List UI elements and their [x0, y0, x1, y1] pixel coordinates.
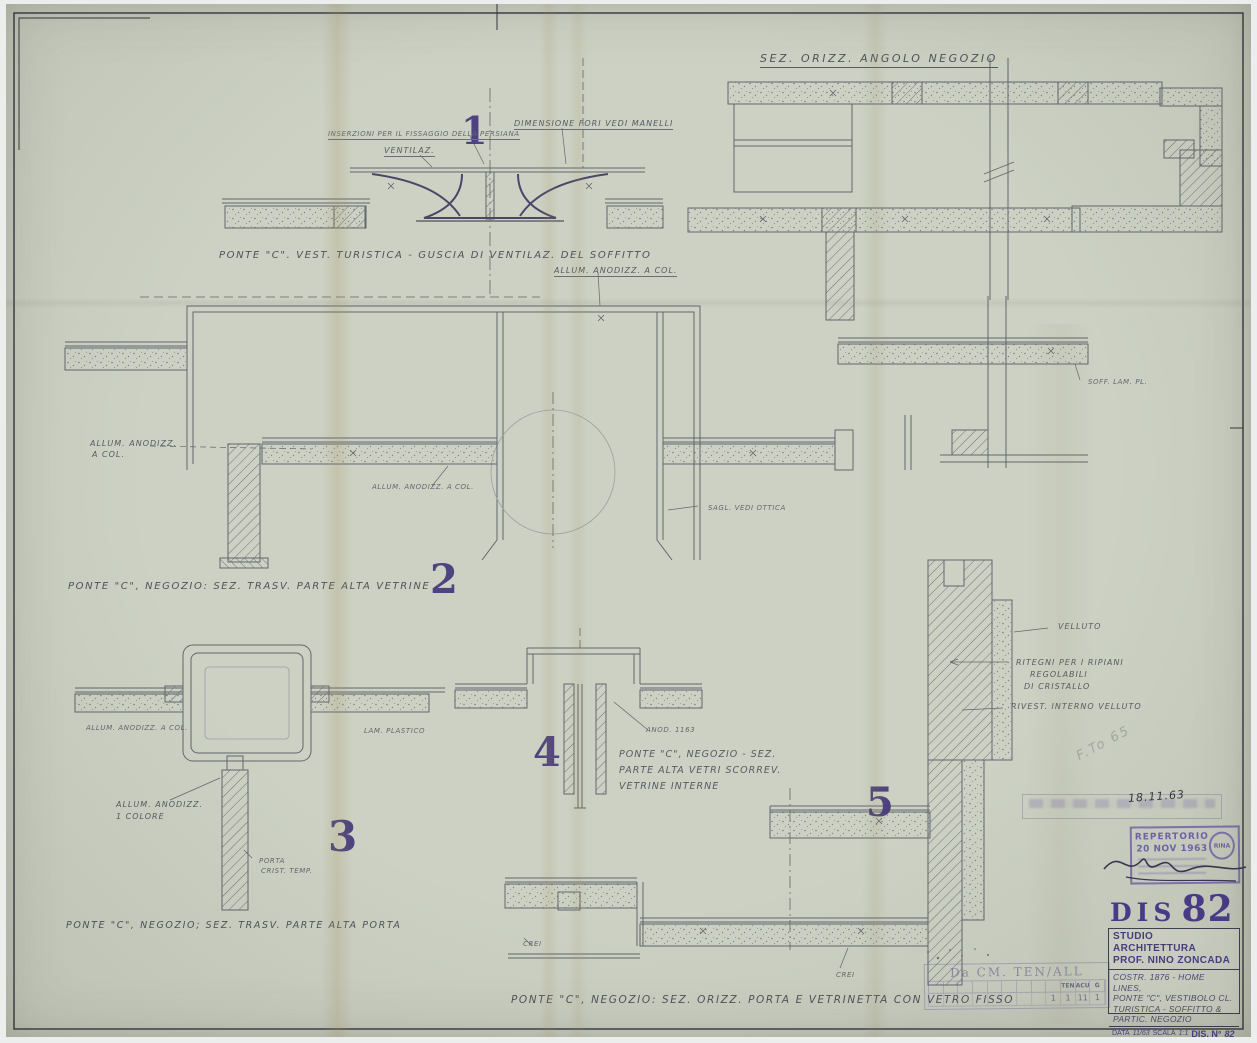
project-desc-3: TURISTICA - SOFFITTO &	[1113, 1004, 1236, 1015]
detail-3-caption: PONTE "C", NEGOZIO; SEZ. TRASV. PARTE AL…	[66, 920, 401, 931]
detail-2-label-left-1: ALLUM. ANODIZZ.	[90, 439, 177, 448]
data-value: 11/63	[1133, 1030, 1150, 1037]
detail-2-label-soffitto: SOFF. LAM. PL.	[1088, 378, 1147, 386]
detail-1-label-dimensione: DIMENSIONE FORI VEDI MANELLI	[514, 119, 673, 130]
tenall-n4: 1	[1090, 992, 1105, 1004]
detail-4-label-anod: ANOD. 1163	[646, 726, 695, 734]
tenall-cell-ten: TEN	[1061, 980, 1076, 991]
detail-1-label-ventilaz: VENTILAZ.	[384, 146, 435, 157]
studio-name: STUDIO ARCHITETTURA	[1113, 931, 1236, 955]
detail-2-label-top: ALLUM. ANODIZZ. A COL.	[554, 266, 677, 277]
date-approval-stamp	[1022, 794, 1222, 819]
scala-value: 1:1	[1179, 1030, 1189, 1037]
detail-4-caption-1: PONTE "C", NEGOZIO - SEZ.	[619, 749, 776, 760]
plan-title: SEZ. ORIZZ. ANGOLO NEGOZIO	[760, 52, 998, 68]
tenall-title: Da CM. TEN/ALL	[928, 964, 1106, 980]
detail-3-label-porta-2: CRIST. TEMP.	[261, 867, 313, 875]
dis-number-stamp: DIS 82	[1110, 888, 1234, 930]
drawing-scan: SEZ. ORIZZ. ANGOLO NEGOZIO 1 INSERZIONI …	[0, 0, 1257, 1043]
data-label: DATA	[1112, 1030, 1130, 1037]
dis-number: 82	[1182, 888, 1234, 930]
detail-3-label-anod-1: ALLUM. ANODIZZ.	[116, 800, 203, 809]
detail-5-label-velluto: VELLUTO	[1058, 622, 1101, 631]
project-desc-1: COSTR. 1876 - HOME LINES,	[1113, 972, 1236, 993]
signature	[1096, 839, 1256, 889]
tenall-n1: 1	[1046, 993, 1061, 1005]
detail-5-label-crei-a: CREI	[523, 940, 542, 948]
architect-name: PROF. NINO ZONCADA	[1113, 955, 1236, 967]
detail-5-label-crei-b: CREI	[836, 971, 855, 979]
detail-2-label-sagoma: SAGL. VEDI OTTICA	[708, 504, 786, 512]
detail-3-label-porta-1: PORTA	[259, 857, 285, 865]
scala-label: SCALA	[1153, 1030, 1176, 1037]
tenall-scale-stamp: Da CM. TEN/ALL TEN ACU G 1 1 11 1	[924, 962, 1110, 1010]
detail-5-label-ritegni-2: REGOLABILI	[1030, 670, 1088, 679]
detail-2-label-mid: ALLUM. ANODIZZ. A COL.	[372, 483, 474, 491]
project-desc-4: PARTIC. NEGOZIO	[1113, 1014, 1236, 1025]
disno-label: DIS. N°	[1191, 1029, 1221, 1039]
tenall-n2: 1	[1061, 992, 1076, 1004]
detail-2-caption: PONTE "C", NEGOZIO: SEZ. TRASV. PARTE AL…	[68, 581, 430, 592]
disno-value: 82	[1224, 1029, 1234, 1039]
project-desc-2: PONTE "C", VESTIBOLO CL.	[1113, 993, 1236, 1004]
detail-5-label-ritegni-3: DI CRISTALLO	[1024, 682, 1090, 691]
tenall-n3: 11	[1076, 992, 1091, 1004]
detail-3-label-lam: LAM. PLASTICO	[364, 727, 425, 735]
tenall-cell-g: G	[1090, 980, 1105, 991]
detail-1-caption: PONTE "C". VEST. TURISTICA - GUSCIA DI V…	[219, 250, 651, 261]
detail-5-label-ritegni-1: RITEGNI PER I RIPIANI	[1016, 658, 1124, 667]
detail-4-caption-2: PARTE ALTA VETRI SCORREV.	[619, 765, 781, 776]
tenall-cell-acu: ACU	[1076, 980, 1091, 991]
detail-4-number: 4	[533, 729, 561, 776]
blueprint-paper: SEZ. ORIZZ. ANGOLO NEGOZIO 1 INSERZIONI …	[6, 4, 1251, 1037]
dis-label: DIS	[1110, 898, 1176, 927]
detail-4-caption-3: VETRINE INTERNE	[619, 781, 719, 792]
detail-5-label-rivest: RIVEST. INTERNO VELLUTO	[1011, 702, 1142, 711]
drawing-linework	[6, 4, 1251, 1037]
detail-2-label-left-2: A COL.	[92, 450, 125, 459]
detail-3-number: 3	[328, 812, 357, 861]
detail-1-label-fissaggio: INSERZIONI PER IL FISSAGGIO DELLA PERSIA…	[328, 130, 520, 140]
title-block: STUDIO ARCHITETTURA PROF. NINO ZONCADA C…	[1108, 928, 1240, 1014]
detail-3-label-anod-2: 1 COLORE	[116, 812, 165, 821]
detail-5-number: 5	[866, 779, 894, 826]
detail-3-label-left: ALLUM. ANODIZZ. A COL.	[86, 724, 188, 732]
detail-2-number: 2	[430, 556, 458, 603]
